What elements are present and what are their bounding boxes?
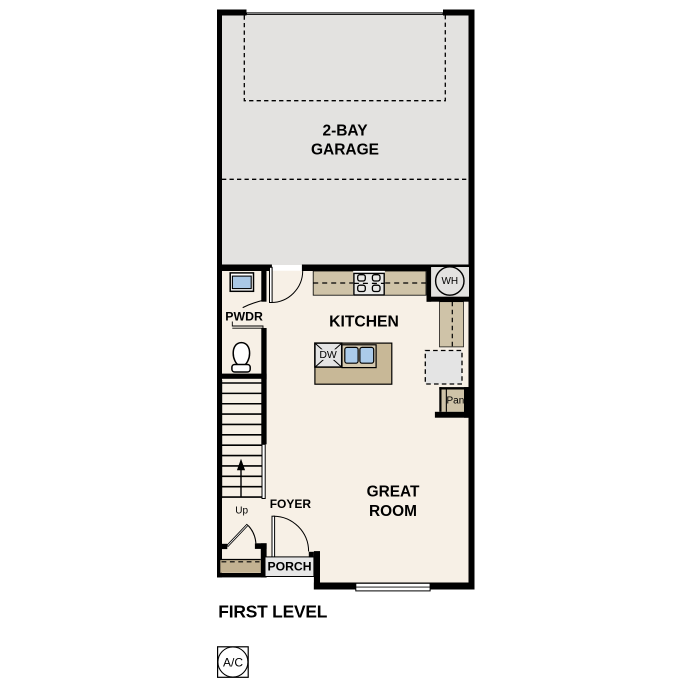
svg-text:GARAGE: GARAGE: [311, 142, 379, 159]
svg-text:PWDR: PWDR: [225, 310, 263, 324]
svg-text:Pan: Pan: [447, 395, 465, 406]
svg-text:DW: DW: [319, 349, 337, 361]
svg-text:WH: WH: [441, 276, 458, 287]
svg-text:GREAT: GREAT: [367, 484, 420, 501]
svg-text:KITCHEN: KITCHEN: [329, 314, 399, 331]
svg-text:2-BAY: 2-BAY: [322, 123, 368, 140]
svg-text:A/C: A/C: [223, 655, 243, 669]
svg-text:FIRST LEVEL: FIRST LEVEL: [218, 601, 327, 621]
svg-text:ROOM: ROOM: [369, 503, 417, 520]
svg-text:FOYER: FOYER: [270, 497, 312, 511]
svg-text:Up: Up: [235, 506, 248, 517]
svg-text:PORCH: PORCH: [267, 560, 311, 574]
